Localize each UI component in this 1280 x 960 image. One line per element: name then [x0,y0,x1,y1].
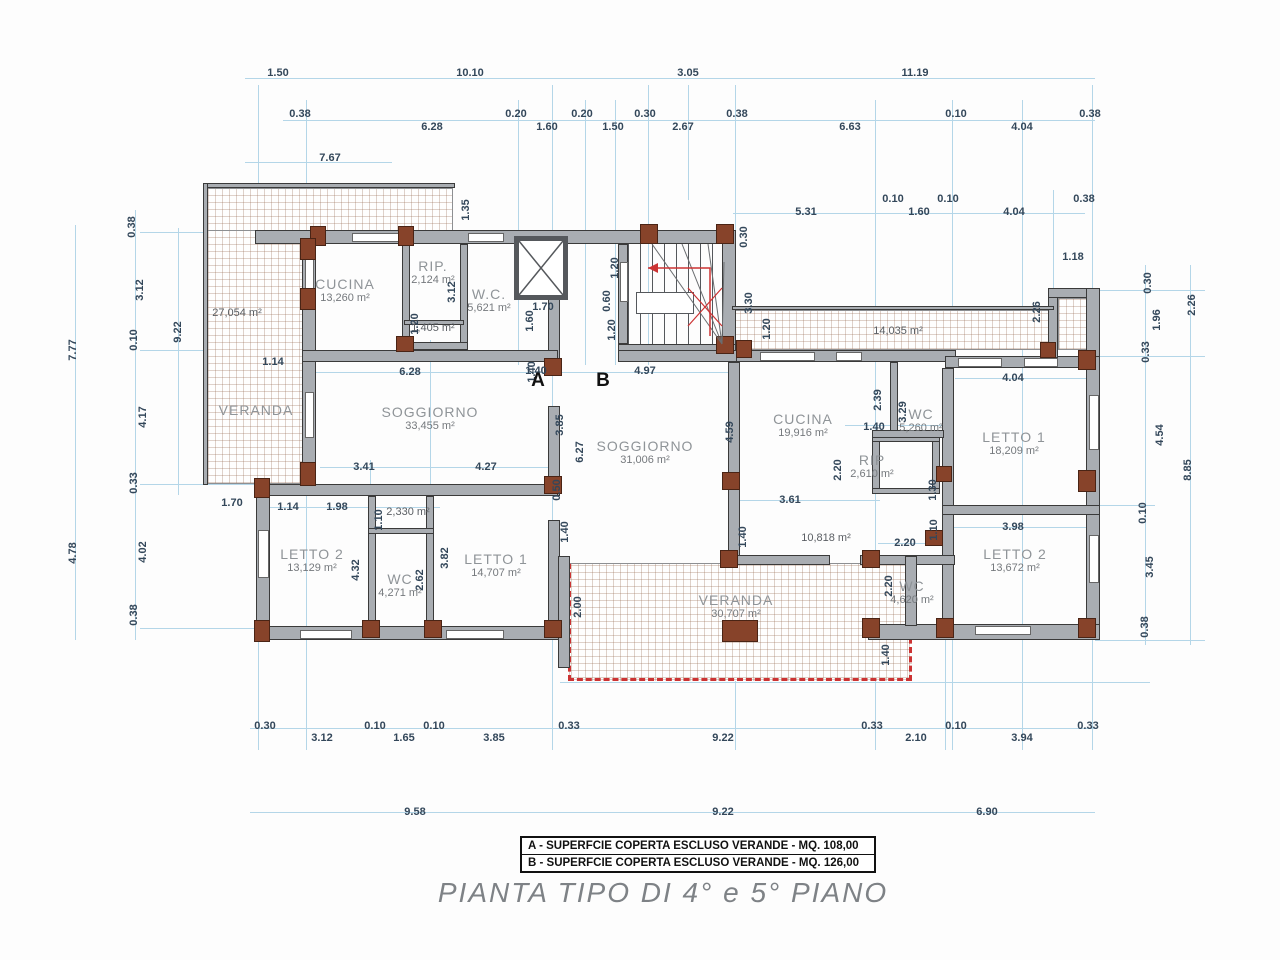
dimension-label: 4.04 [1002,372,1023,384]
room-area: 5,621 m² [467,302,510,314]
room-name: SOGGIORNO [597,438,694,454]
dimension-label: 6.28 [421,121,442,133]
room-name: VERANDA [699,592,774,608]
dimension-label: 0.38 [726,108,747,120]
room-name: CUCINA [315,276,375,292]
dimension-label: 6.28 [399,366,420,378]
room-area: 19,916 m² [773,427,833,439]
dimension-label: 0.30 [254,720,275,732]
dimension-label: 3.41 [353,461,374,473]
dimension-label: 0.10 [882,193,903,205]
room-label: LETTO 114,707 m² [464,551,528,579]
room-area: 13,260 m² [315,292,375,304]
dimension-label: 6.27 [574,441,586,462]
room-label: SOGGIORNO33,455 m² [382,404,479,432]
dimension-label: 9.22 [172,321,184,342]
dimension-label: 0.60 [601,290,613,311]
room-label: WC4,620 m² [890,578,933,606]
dimension-label: 0.10 [423,720,444,732]
dimension-label: 1.30 [927,479,939,500]
dimension-label: 1.50 [267,67,288,79]
dimension-label: 1.96 [1151,309,1163,330]
dimension-label: 4.54 [1154,424,1166,445]
dimension-label: 4.32 [350,559,362,580]
page-title: PIANTA TIPO DI 4° e 5° PIANO [438,877,888,909]
dimension-label: 1.10 [928,519,940,540]
dimension-label: 2.20 [883,575,895,596]
floor-plan-canvas: CUCINA13,260 m²RIP.2,124 m²W.C.5,621 m²1… [0,0,1280,960]
legend-item-a: A - SUPERFCIE COPERTA ESCLUSO VERANDE - … [522,838,874,855]
dimension-label: 3.94 [1011,732,1032,744]
dimension-label: 1.50 [602,121,623,133]
dimension-label: 0.38 [128,604,140,625]
room-name: CUCINA [773,411,833,427]
room-name: LETTO 2 [280,546,344,562]
dimension-label: 2.62 [414,569,426,590]
dimension-label: 0.38 [1139,616,1151,637]
dimension-label: 1.35 [460,199,472,220]
dimension-label: 7.77 [67,339,79,360]
dimension-label: 2.26 [1186,294,1198,315]
dimension-label: 1.65 [393,732,414,744]
room-label: SOGGIORNO31,006 m² [597,438,694,466]
legend-box: A - SUPERFCIE COPERTA ESCLUSO VERANDE - … [520,836,876,873]
room-name: LETTO 2 [983,546,1047,562]
room-label: CUCINA19,916 m² [773,411,833,439]
room-area: 5,260 m² [899,422,942,434]
dimension-label: 9.22 [712,732,733,744]
room-label: 27,054 m² [212,307,262,319]
dimension-label: 0.33 [1077,720,1098,732]
dimension-label: 4.27 [475,461,496,473]
dimension-label: 3.12 [134,279,146,300]
dimension-label: 0.38 [289,108,310,120]
dimension-label: 1.60 [536,121,557,133]
dimension-label: 4.59 [724,421,736,442]
dimension-label: 2.39 [872,389,884,410]
dimension-label: 0.33 [1140,341,1152,362]
room-area: 14,707 m² [464,567,528,579]
dimension-label: 4.78 [67,542,79,563]
dimension-label: 1.40 [559,521,571,542]
dimension-label: 0.30 [1142,272,1154,293]
dimension-label: 1.20 [609,257,621,278]
dimension-label: 2.20 [832,459,844,480]
dimension-label: 0.33 [558,720,579,732]
dimension-label: 3.05 [677,67,698,79]
dimension-label: 0.10 [945,720,966,732]
room-area: 2,330 m² [386,506,429,518]
dimension-label: 0.38 [126,216,138,237]
room-name: LETTO 1 [982,429,1046,445]
dimension-label: 7.67 [319,152,340,164]
dimension-label: 1.10 [373,509,385,530]
room-name: SOGGIORNO [382,404,479,420]
room-label: LETTO 213,129 m² [280,546,344,574]
room-area: 10,818 m² [801,532,851,544]
room-name: WC [890,578,933,594]
room-label: 2,330 m² [386,506,429,518]
room-label: VERANDA30,707 m² [699,592,774,620]
room-name: RIP [850,452,893,468]
room-area: 4,620 m² [890,594,933,606]
dimension-label: 9.58 [404,806,425,818]
dimension-label: 1.70 [221,497,242,509]
dimension-label: 0.10 [128,329,140,350]
dimension-label: 3.12 [446,281,458,302]
dimension-label: 1.40 [880,644,892,665]
dimension-label: 0.33 [128,472,140,493]
dimension-label: 2.67 [672,121,693,133]
dimension-label: 3.29 [897,401,909,422]
dimension-label: 2.26 [1031,301,1043,322]
dimension-label: 4.17 [137,406,149,427]
room-name: VERANDA [219,402,294,418]
dimension-label: 2.20 [894,537,915,549]
dimension-label: 1.60 [524,310,536,331]
dimension-label: 0.30 [738,226,750,247]
dimension-label: 0.20 [505,108,526,120]
dimension-label: 1.14 [262,356,283,368]
room-area: 33,455 m² [382,420,479,432]
dimension-label: 6.63 [839,121,860,133]
room-area: 14,035 m² [873,325,923,337]
room-area: 18,209 m² [982,445,1046,457]
room-label: VERANDA [219,402,294,418]
dimension-label: 0.10 [945,108,966,120]
dimension-label: 0.38 [1079,108,1100,120]
dimension-label: 5.31 [795,206,816,218]
dimension-label: 0.20 [571,108,592,120]
dimension-label: 1.20 [409,313,421,334]
dimension-label: 2.10 [905,732,926,744]
dimension-label: 4.97 [634,365,655,377]
dimension-label: 3.98 [1002,521,1023,533]
dimension-label: 4.04 [1011,121,1032,133]
room-label: LETTO 118,209 m² [982,429,1046,457]
dimension-label: 3.82 [439,547,451,568]
dimension-label: 1.40 [737,526,749,547]
dimension-label: 0.10 [364,720,385,732]
room-label: LETTO 213,672 m² [983,546,1047,574]
dimension-label: 1.20 [606,319,618,340]
stairs-and-symbols-svg [0,0,1280,960]
room-label: 14,035 m² [873,325,923,337]
dimension-label: 3.12 [311,732,332,744]
dimension-label: 2.00 [572,596,584,617]
dimension-label: 0.10 [1137,502,1149,523]
room-name: W.C. [467,286,510,302]
room-area: 27,054 m² [212,307,262,319]
dimension-label: 0.33 [861,720,882,732]
room-area: 13,672 m² [983,562,1047,574]
room-area: 31,006 m² [597,454,694,466]
room-label: W.C.5,621 m² [467,286,510,314]
dimension-label: 10.10 [456,67,484,79]
section-marker-b: B [596,370,610,392]
dimension-label: 3.45 [1144,556,1156,577]
room-area: 30,707 m² [699,608,774,620]
dimension-label: 0.38 [1073,193,1094,205]
room-name: LETTO 1 [464,551,528,567]
dimension-label: 9.22 [712,806,733,818]
dimension-label: 4.04 [1003,206,1024,218]
dimension-label: 1.98 [326,501,347,513]
dimension-label: 1.18 [1062,251,1083,263]
dimension-label: 1.14 [277,501,298,513]
room-label: RIP2,610 m² [850,452,893,480]
dimension-label: 6.90 [976,806,997,818]
dimension-label: 1.40 [863,421,884,433]
dimension-label: 3.30 [743,292,755,313]
room-area: 13,129 m² [280,562,344,574]
dimension-label: 3.61 [779,494,800,506]
room-name: RIP. [411,258,454,274]
legend-item-b: B - SUPERFCIE COPERTA ESCLUSO VERANDE - … [522,855,874,871]
dimension-label: 8.85 [1182,459,1194,480]
dimension-label: 0.30 [634,108,655,120]
dimension-label: 0.50 [551,479,563,500]
dimension-label: 1.20 [761,318,773,339]
room-label: 10,818 m² [801,532,851,544]
dimension-label: 11.19 [902,67,929,79]
dimension-label: 0.10 [937,193,958,205]
dimension-label: 3.85 [554,414,566,435]
dimension-label: 3.85 [483,732,504,744]
dimension-label: 1.60 [908,206,929,218]
room-area: 2,610 m² [850,468,893,480]
room-label: CUCINA13,260 m² [315,276,375,304]
dimension-label: 4.02 [137,541,149,562]
section-marker-a: A [531,370,545,392]
